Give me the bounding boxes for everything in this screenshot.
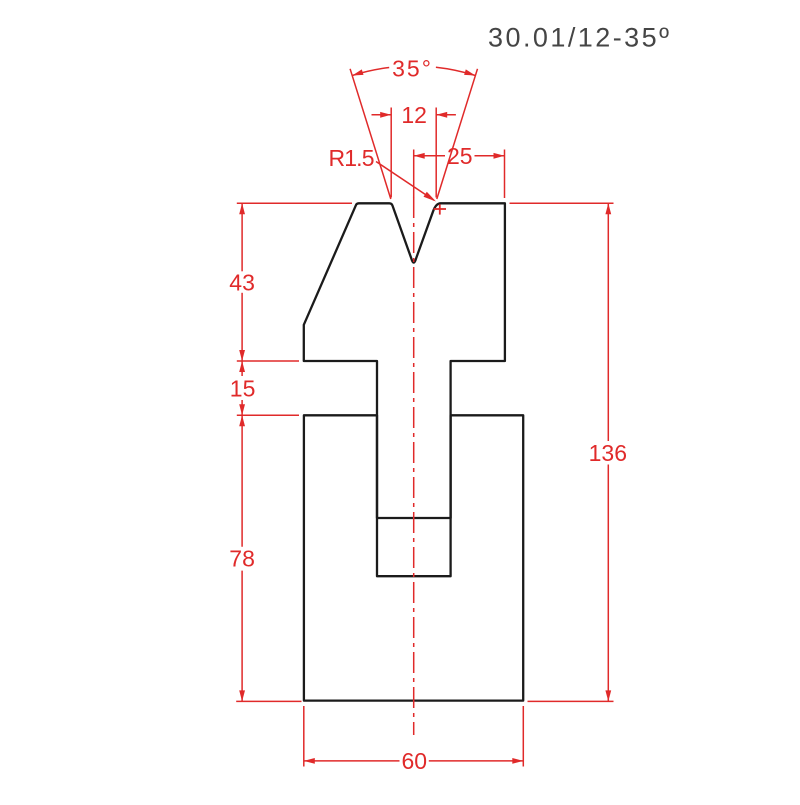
svg-text:15: 15	[230, 376, 256, 402]
svg-text:136: 136	[589, 440, 627, 466]
svg-text:43: 43	[229, 270, 255, 296]
svg-text:30.01/12-35º: 30.01/12-35º	[488, 23, 669, 53]
svg-text:35°: 35°	[392, 56, 433, 82]
svg-text:12: 12	[401, 102, 427, 128]
svg-text:60: 60	[402, 748, 428, 774]
svg-text:25: 25	[447, 143, 473, 169]
svg-text:R1.5: R1.5	[329, 145, 375, 171]
svg-text:78: 78	[229, 546, 255, 572]
